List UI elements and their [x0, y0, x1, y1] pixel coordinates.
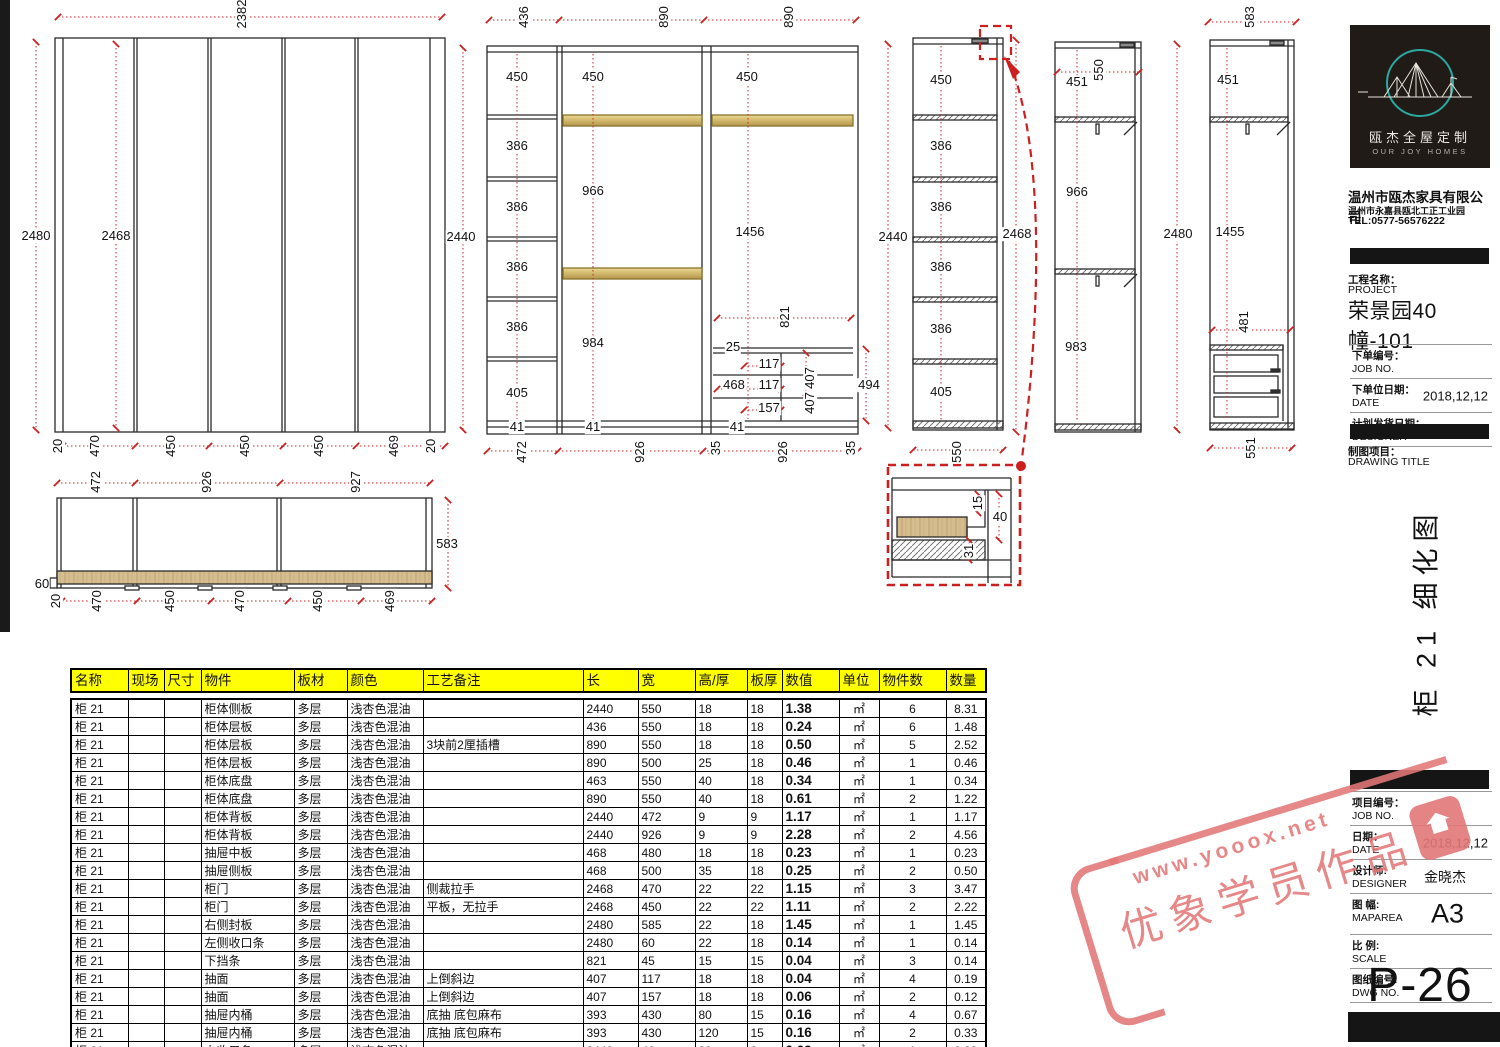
cell: [128, 790, 164, 808]
cell: 393: [583, 1006, 638, 1024]
header-cell: 单位: [839, 669, 879, 692]
cell: 柜 21: [71, 952, 128, 970]
cell: 18: [747, 772, 782, 790]
cell: 多层: [294, 916, 347, 934]
cell: 2: [879, 988, 946, 1006]
cell: [128, 754, 164, 772]
cell: [128, 970, 164, 988]
cell: 463: [583, 772, 638, 790]
cell: 80: [695, 1006, 747, 1024]
field-label-cn: 下单编号：: [1352, 348, 1492, 363]
cell: 多层: [294, 1042, 347, 1047]
field-label-cn: 设计师:: [1352, 863, 1492, 878]
cell: 1: [879, 844, 946, 862]
dim-label: 407: [803, 366, 817, 390]
cell: 407: [583, 970, 638, 988]
cell: 0.50: [782, 736, 839, 754]
cell: 45: [638, 952, 695, 970]
cell: 多层: [294, 988, 347, 1006]
page-number: P-26: [1348, 958, 1492, 1013]
table-row: 柜 21柜体背板多层浅杏色混油2440472991.17㎡11.17: [71, 808, 986, 826]
dim-label: 451: [1216, 73, 1240, 87]
cell: 0.09: [782, 1042, 839, 1047]
cell: [164, 1024, 201, 1042]
cell: 浅杏色混油: [347, 1024, 423, 1042]
dim-label: 405: [505, 386, 529, 400]
cell: 柜体侧板: [201, 699, 294, 718]
logo-brand-en: OUR JOY HOMES: [1350, 147, 1490, 156]
dim-label: 1456: [735, 225, 766, 239]
header-cell: 数量: [946, 669, 986, 692]
cell: 0.16: [782, 1024, 839, 1042]
cell: 2: [879, 1024, 946, 1042]
dim-label: 20: [424, 438, 438, 454]
cell: 430: [638, 1006, 695, 1024]
dim-label: 2468: [1002, 227, 1033, 241]
cell: ㎡: [839, 898, 879, 916]
field-value: A3: [1431, 899, 1464, 930]
company-logo: 瓯杰全屋定制 OUR JOY HOMES: [1350, 25, 1490, 168]
cell: 0.14: [946, 934, 986, 952]
cell: 浅杏色混油: [347, 736, 423, 754]
cell: 抽屉侧板: [201, 862, 294, 880]
dim-label: 966: [1065, 185, 1089, 199]
cell: 浅杏色混油: [347, 826, 423, 844]
table-row: 柜 21抽屉内桶多层浅杏色混油底抽 底包麻布393430120150.16㎡20…: [71, 1024, 986, 1042]
cell: 柜 21: [71, 808, 128, 826]
cell: 550: [638, 790, 695, 808]
dim-label: 35: [709, 440, 723, 456]
bottom-bar: [1348, 1012, 1500, 1042]
cell: ㎡: [839, 1006, 879, 1024]
cell: 9: [747, 826, 782, 844]
cell: 550: [638, 718, 695, 736]
table-row: 柜 21抽屉侧板多层浅杏色混油46850035180.25㎡20.50: [71, 862, 986, 880]
cell: [164, 952, 201, 970]
cell: 柜 21: [71, 826, 128, 844]
cell: 上收口条: [201, 1042, 294, 1047]
cell: 浅杏色混油: [347, 699, 423, 718]
cell: 2440: [583, 826, 638, 844]
cell: 柜门: [201, 898, 294, 916]
cell: 393: [583, 1024, 638, 1042]
header-cell: 工艺备注: [423, 669, 583, 692]
cell: 0.12: [946, 988, 986, 1006]
dim-label: 450: [238, 434, 252, 458]
dim-label: 405: [929, 385, 953, 399]
cell: 35: [695, 862, 747, 880]
cell: 浅杏色混油: [347, 862, 423, 880]
cell: 15: [695, 952, 747, 970]
divider-bar: [1350, 424, 1489, 439]
cell: 柜体层板: [201, 718, 294, 736]
cell: 柜 21: [71, 844, 128, 862]
table-row: 柜 21上收口条多层浅杏色混油2440403020.09㎡10.09: [71, 1042, 986, 1047]
cell: 0.24: [782, 718, 839, 736]
cell: 柜 21: [71, 699, 128, 718]
cell: 890: [583, 736, 638, 754]
cell: ㎡: [839, 970, 879, 988]
cell: 472: [638, 808, 695, 826]
table-row: 柜 21柜体侧板多层浅杏色混油244055018181.38㎡68.31: [71, 699, 986, 718]
cell: 18: [747, 862, 782, 880]
cell: 浅杏色混油: [347, 1006, 423, 1024]
dim-label: 20: [51, 438, 65, 454]
cell: ㎡: [839, 699, 879, 718]
cell: 500: [638, 862, 695, 880]
cell: [128, 772, 164, 790]
cell: 2.28: [782, 826, 839, 844]
cell: 2.22: [946, 898, 986, 916]
dim-label: 450: [311, 589, 325, 613]
field-row: 下单位日期：DATE2018,12,12: [1350, 379, 1492, 413]
cell: 500: [638, 754, 695, 772]
cell: 0.25: [782, 862, 839, 880]
cell: 多层: [294, 772, 347, 790]
header-cell: 现场: [128, 669, 164, 692]
cell: 柜体底盘: [201, 772, 294, 790]
cell: 抽面: [201, 970, 294, 988]
field-row: 设计师:DESIGNER金晓杰: [1350, 860, 1492, 894]
cell: 0.16: [782, 1006, 839, 1024]
cell: 浅杏色混油: [347, 1042, 423, 1047]
cell: 多层: [294, 718, 347, 736]
dim-label: 40: [992, 510, 1008, 524]
cell: 多层: [294, 880, 347, 898]
cell: 22: [695, 880, 747, 898]
dim-label: 450: [929, 73, 953, 87]
dim-label: 386: [929, 322, 953, 336]
dim-label: 450: [163, 589, 177, 613]
dim-label: 966: [581, 184, 605, 198]
cell: [128, 844, 164, 862]
cell: 0.14: [782, 934, 839, 952]
table-row: 柜 21柜体底盘多层浅杏色混油46355040180.34㎡10.34: [71, 772, 986, 790]
header-cell: 数值: [782, 669, 839, 692]
cell: [164, 754, 201, 772]
cell: 下挡条: [201, 952, 294, 970]
cell: 18: [747, 754, 782, 772]
cell: [423, 718, 583, 736]
cell: 多层: [294, 970, 347, 988]
dim-label: 25: [725, 340, 741, 354]
dim-label: 470: [88, 434, 102, 458]
dim-label: 481: [1237, 310, 1251, 334]
cell: 多层: [294, 808, 347, 826]
field-label-en: JOB NO.: [1352, 363, 1492, 375]
cell: [128, 808, 164, 826]
dim-label: 20: [49, 593, 63, 609]
dim-label: 117: [758, 378, 781, 392]
cell: [164, 699, 201, 718]
dim-label: 926: [776, 440, 790, 464]
cell: 浅杏色混油: [347, 934, 423, 952]
divider-bar: [1350, 770, 1489, 789]
cell: [128, 862, 164, 880]
cell: 18: [747, 699, 782, 718]
dim-label: 15: [971, 495, 985, 511]
cell: 40: [638, 1042, 695, 1047]
cell: 0.34: [782, 772, 839, 790]
cell: 浅杏色混油: [347, 970, 423, 988]
cell: ㎡: [839, 916, 879, 934]
cell: 2468: [583, 898, 638, 916]
cell: 3: [879, 880, 946, 898]
cell: [128, 988, 164, 1006]
cell: 18: [747, 790, 782, 808]
table-row: 柜 21抽屉内桶多层浅杏色混油底抽 底包麻布39343080150.16㎡40.…: [71, 1006, 986, 1024]
cell: 22: [695, 898, 747, 916]
dim-label: 927: [349, 470, 363, 494]
cell: [423, 916, 583, 934]
cell: 柜 21: [71, 916, 128, 934]
cell: [164, 916, 201, 934]
cell: 407: [583, 988, 638, 1006]
cell: ㎡: [839, 952, 879, 970]
table-row: 柜 21下挡条多层浅杏色混油8214515150.04㎡30.14: [71, 952, 986, 970]
cell: 1.17: [782, 808, 839, 826]
field-row: 图 幅:MAPAREAA3: [1350, 894, 1492, 935]
dim-label: 821: [778, 305, 792, 329]
header-cell: 物件: [201, 669, 294, 692]
cell: 470: [638, 880, 695, 898]
cell: 上倒斜边: [423, 988, 583, 1006]
table-row: 柜 21柜门多层浅杏色混油侧裁拉手246847022221.15㎡33.47: [71, 880, 986, 898]
cell: 0.50: [946, 862, 986, 880]
header-cell: 宽: [638, 669, 695, 692]
cell: 468: [583, 862, 638, 880]
cell: [164, 1006, 201, 1024]
dim-label: 926: [200, 470, 214, 494]
cell: 浅杏色混油: [347, 718, 423, 736]
cell: [128, 916, 164, 934]
cell: 6: [879, 699, 946, 718]
cell: 1.45: [782, 916, 839, 934]
cell: [164, 844, 201, 862]
dim-label: 583: [1243, 5, 1257, 29]
dim-label: 468: [722, 378, 746, 392]
cell: 柜体背板: [201, 808, 294, 826]
cell: 1.48: [946, 718, 986, 736]
dim-label: 2480: [1163, 227, 1194, 241]
dim-label: 472: [515, 440, 529, 464]
table-row: 柜 21柜门多层浅杏色混油平板，无拉手246845022221.11㎡22.22: [71, 898, 986, 916]
header-cell: 颜色: [347, 669, 423, 692]
cell: 多层: [294, 754, 347, 772]
cell: 2440: [583, 699, 638, 718]
cell: 3.47: [946, 880, 986, 898]
dim-label: 2468: [101, 229, 132, 243]
header-cell: 高/厚: [695, 669, 747, 692]
cell: 3: [879, 952, 946, 970]
cell: 多层: [294, 826, 347, 844]
cell: 15: [747, 1006, 782, 1024]
dim-label: 2382: [235, 0, 249, 29]
cell: [423, 1042, 583, 1047]
table-row: 柜 21柜体层板多层浅杏色混油43655018180.24㎡61.48: [71, 718, 986, 736]
cell: 1.45: [946, 916, 986, 934]
cell: [164, 790, 201, 808]
dim-label: 60: [34, 577, 50, 591]
cell: 浅杏色混油: [347, 808, 423, 826]
cell: ㎡: [839, 736, 879, 754]
cell: 柜门: [201, 880, 294, 898]
cell: [423, 952, 583, 970]
cell: 40: [695, 790, 747, 808]
dim-label: 386: [505, 200, 529, 214]
cell: 多层: [294, 736, 347, 754]
cell: [164, 988, 201, 1006]
cell: 柜 21: [71, 754, 128, 772]
cell: 4: [879, 1006, 946, 1024]
dim-label: 583: [435, 537, 459, 551]
dim-label: 386: [505, 139, 529, 153]
dim-label: 436: [517, 5, 531, 29]
cell: 550: [638, 772, 695, 790]
cell: 1: [879, 916, 946, 934]
cell: 18: [747, 736, 782, 754]
table-row: 柜 21抽面多层浅杏色混油上倒斜边40711718180.04㎡40.19: [71, 970, 986, 988]
cell: 柜 21: [71, 988, 128, 1006]
cell: [164, 1042, 201, 1047]
cell: [128, 1006, 164, 1024]
cell: 9: [695, 808, 747, 826]
cell: 0.04: [782, 952, 839, 970]
cell: 柜 21: [71, 898, 128, 916]
cell: 浅杏色混油: [347, 988, 423, 1006]
cell: 430: [638, 1024, 695, 1042]
cell: 柜体底盘: [201, 790, 294, 808]
cell: 浅杏色混油: [347, 772, 423, 790]
cell: 22: [747, 898, 782, 916]
dim-label: 983: [1064, 340, 1088, 354]
dim-label: 386: [505, 260, 529, 274]
cell: 2: [879, 898, 946, 916]
cell: 480: [638, 844, 695, 862]
cell: 抽屉内桶: [201, 1006, 294, 1024]
cell: 浅杏色混油: [347, 790, 423, 808]
cell: ㎡: [839, 772, 879, 790]
field-value: 金晓杰: [1424, 867, 1466, 887]
cell: 1: [879, 808, 946, 826]
cell: 1.15: [782, 880, 839, 898]
cell: 柜体层板: [201, 754, 294, 772]
cell: [423, 844, 583, 862]
cell: 0.33: [946, 1024, 986, 1042]
cell: 柜 21: [71, 736, 128, 754]
header-cell: 物件数: [879, 669, 946, 692]
cell: 585: [638, 916, 695, 934]
cell: [128, 1042, 164, 1047]
table-row: 柜 21柜体背板多层浅杏色混油2440926992.28㎡24.56: [71, 826, 986, 844]
cell: 多层: [294, 1024, 347, 1042]
cell: 柜 21: [71, 1006, 128, 1024]
cell: ㎡: [839, 754, 879, 772]
cell: 9: [695, 826, 747, 844]
cell: 0.67: [946, 1006, 986, 1024]
cell: [164, 736, 201, 754]
cell: [128, 952, 164, 970]
cell: 柜 21: [71, 718, 128, 736]
cell: 1.17: [946, 808, 986, 826]
cell: 多层: [294, 1006, 347, 1024]
dim-label: 2480: [21, 229, 52, 243]
header-row: 名称现场尺寸物件板材颜色工艺备注长宽高/厚板厚数值单位物件数数量: [71, 669, 986, 692]
cell: 550: [638, 736, 695, 754]
cell: 0.06: [782, 988, 839, 1006]
dim-label: 984: [581, 336, 605, 350]
cell: 0.19: [946, 970, 986, 988]
dim-label: 472: [89, 470, 103, 494]
cell: [423, 699, 583, 718]
cell: 18: [695, 988, 747, 1006]
field-label-cn: 比 例:: [1352, 938, 1492, 953]
cell: 15: [747, 1024, 782, 1042]
cell: 0.23: [782, 844, 839, 862]
cell: 1: [879, 934, 946, 952]
dim-label: 494: [857, 378, 881, 392]
dim-label: 386: [505, 320, 529, 334]
drawing-title-vertical: 柜 21 细化图: [1405, 507, 1444, 716]
logo-mountains-icon: [1350, 25, 1490, 125]
header-cell: 尺寸: [164, 669, 201, 692]
dim-label: 2440: [446, 230, 477, 244]
cell: 18: [695, 844, 747, 862]
parts-table-header: 名称现场尺寸物件板材颜色工艺备注长宽高/厚板厚数值单位物件数数量: [70, 668, 987, 693]
cell: 0.61: [782, 790, 839, 808]
cell: ㎡: [839, 988, 879, 1006]
cell: 底抽 底包麻布: [423, 1024, 583, 1042]
cell: 0.23: [946, 844, 986, 862]
field-label-en: DESIGNER: [1352, 878, 1492, 890]
cell: 18: [695, 736, 747, 754]
cell: [128, 699, 164, 718]
cell: 18: [747, 718, 782, 736]
cell: [164, 862, 201, 880]
cell: 2: [879, 790, 946, 808]
cell: [423, 808, 583, 826]
parts-table: 柜 21柜体侧板多层浅杏色混油244055018181.38㎡68.31柜 21…: [70, 698, 987, 1047]
dim-label: 450: [735, 70, 759, 84]
cell: 4: [879, 970, 946, 988]
cell: 1.11: [782, 898, 839, 916]
cell: 平板，无拉手: [423, 898, 583, 916]
cell: 柜 21: [71, 862, 128, 880]
cell: [164, 808, 201, 826]
table-row: 柜 21右侧封板多层浅杏色混油248058522181.45㎡11.45: [71, 916, 986, 934]
cell: 柜体层板: [201, 736, 294, 754]
dim-label: 31: [962, 543, 976, 559]
cell: 0.34: [946, 772, 986, 790]
cell: 18: [695, 970, 747, 988]
cell: 18: [747, 970, 782, 988]
table-row: 柜 21抽屉中板多层浅杏色混油46848018180.23㎡10.23: [71, 844, 986, 862]
field-value: 2018,12,12: [1423, 388, 1488, 403]
cell: 侧裁拉手: [423, 880, 583, 898]
cell: 2: [747, 1042, 782, 1047]
table-row: 柜 21柜体层板多层浅杏色混油89050025180.46㎡10.46: [71, 754, 986, 772]
cell: [128, 718, 164, 736]
cell: 0.14: [946, 952, 986, 970]
cell: [128, 1024, 164, 1042]
cell: 60: [638, 934, 695, 952]
company-tel: TEL:0577-56576222: [1348, 215, 1496, 227]
cell: [164, 826, 201, 844]
dim-label: 890: [657, 5, 671, 29]
cell: 多层: [294, 844, 347, 862]
cell: ㎡: [839, 1024, 879, 1042]
cell: 821: [583, 952, 638, 970]
